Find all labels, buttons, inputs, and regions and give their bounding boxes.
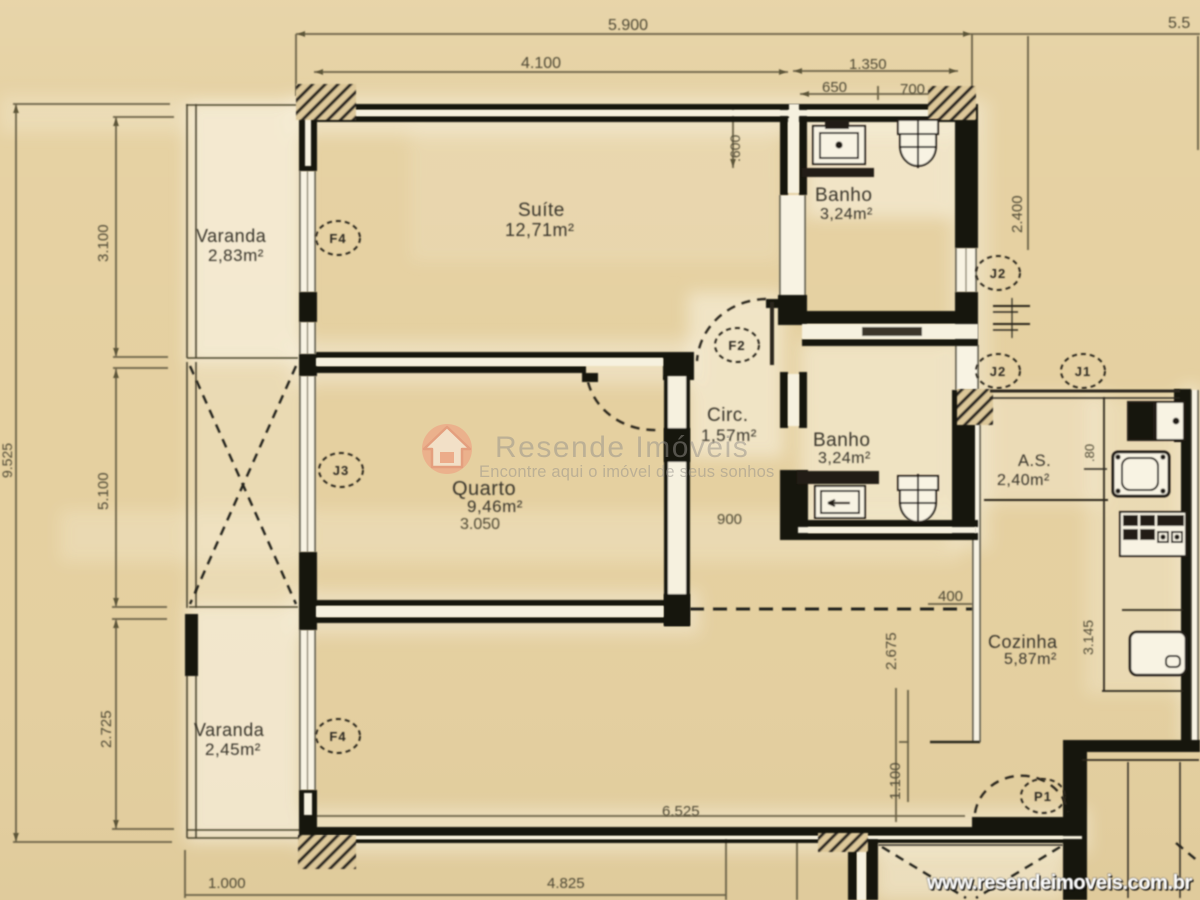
svg-text:4.825: 4.825 [547, 875, 585, 892]
svg-text:J2: J2 [990, 266, 1006, 281]
svg-text:Circ.: Circ. [707, 405, 749, 426]
svg-text:J2: J2 [990, 364, 1006, 379]
svg-text:5.5: 5.5 [1168, 15, 1190, 32]
svg-text:12,71m²: 12,71m² [505, 220, 575, 240]
svg-text:Banho: Banho [813, 430, 870, 451]
svg-text:.600: .600 [727, 135, 743, 162]
svg-text:2.400: 2.400 [1009, 195, 1026, 233]
svg-text:Banho: Banho [815, 185, 872, 206]
svg-text:6.525: 6.525 [662, 803, 700, 820]
svg-text:5.900: 5.900 [608, 17, 648, 34]
svg-text:F4: F4 [329, 231, 346, 246]
svg-text:3,24m²: 3,24m² [820, 206, 873, 223]
svg-text:Varanda: Varanda [194, 720, 265, 740]
svg-text:2.725: 2.725 [98, 710, 115, 748]
svg-text:Suíte: Suíte [518, 200, 565, 221]
svg-text:2,45m²: 2,45m² [205, 740, 261, 759]
svg-text:www.resendeimoveis.com.br: www.resendeimoveis.com.br [926, 872, 1193, 894]
svg-text:.80: .80 [1082, 444, 1097, 462]
svg-text:4.100: 4.100 [521, 55, 561, 72]
svg-text:400: 400 [938, 588, 963, 605]
svg-text:F4: F4 [329, 729, 346, 744]
svg-text:3.050: 3.050 [460, 516, 500, 533]
svg-text:3.145: 3.145 [1080, 620, 1096, 655]
svg-text:J1: J1 [1075, 364, 1091, 379]
svg-text:Resende Imóveis: Resende Imóveis [495, 431, 749, 464]
svg-text:5.100: 5.100 [95, 472, 112, 510]
svg-text:P1: P1 [1034, 789, 1052, 804]
svg-text:9.525: 9.525 [0, 443, 15, 478]
svg-text:900: 900 [717, 511, 742, 528]
svg-text:5,87m²: 5,87m² [1004, 651, 1057, 668]
svg-text:2,40m²: 2,40m² [997, 472, 1050, 489]
svg-text:1.350: 1.350 [849, 56, 887, 73]
svg-text:J3: J3 [333, 463, 349, 478]
svg-text:2,83m²: 2,83m² [208, 246, 264, 265]
svg-text:Encontre aqui o imóvel de seus: Encontre aqui o imóvel de seus sonhos [479, 463, 774, 481]
svg-text:3,24m²: 3,24m² [818, 450, 871, 467]
svg-text:Cozinha: Cozinha [988, 632, 1058, 652]
svg-text:650: 650 [822, 79, 847, 96]
svg-text:1.100: 1.100 [887, 762, 904, 800]
svg-text:3.100: 3.100 [95, 224, 112, 262]
svg-text:1.000: 1.000 [208, 875, 246, 892]
svg-text:F2: F2 [728, 338, 745, 353]
svg-text:700: 700 [900, 81, 925, 98]
svg-text:Varanda: Varanda [196, 226, 267, 246]
svg-text:A.S.: A.S. [1018, 452, 1051, 470]
svg-text:9,46m²: 9,46m² [467, 497, 523, 516]
svg-text:2.675: 2.675 [883, 632, 900, 670]
